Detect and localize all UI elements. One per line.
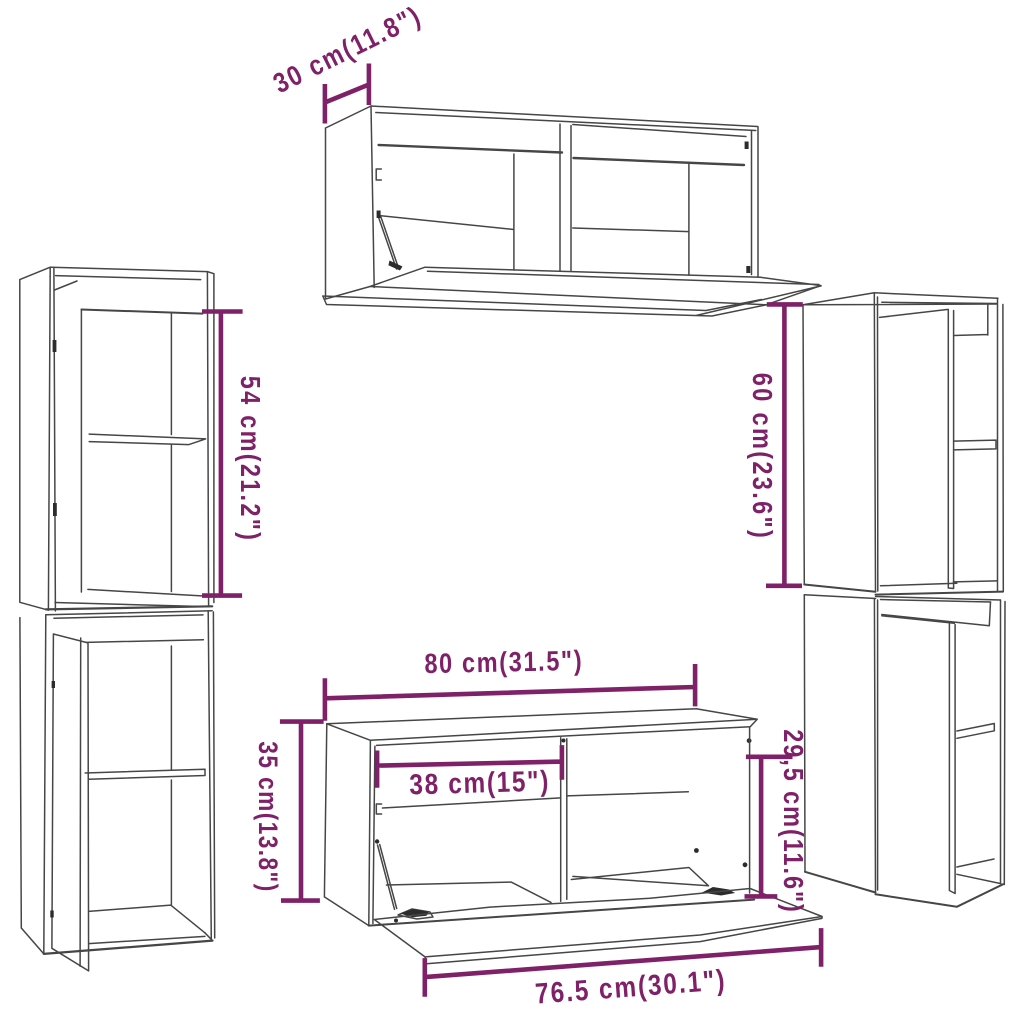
svg-text:76.5 cm(30.1"): 76.5 cm(30.1") [534, 963, 727, 1010]
svg-text:80 cm(31.5"): 80 cm(31.5") [424, 646, 583, 680]
svg-text:35 cm(13.8"): 35 cm(13.8") [253, 741, 283, 892]
svg-text:29,5 cm(11.6"): 29,5 cm(11.6") [778, 729, 808, 914]
svg-text:54 cm(21.2"): 54 cm(21.2") [235, 376, 265, 542]
svg-text:60 cm(23.6"): 60 cm(23.6") [747, 373, 777, 540]
svg-text:38 cm(15"): 38 cm(15") [409, 765, 550, 801]
svg-text:30 cm(11.8"): 30 cm(11.8") [269, 1, 427, 100]
